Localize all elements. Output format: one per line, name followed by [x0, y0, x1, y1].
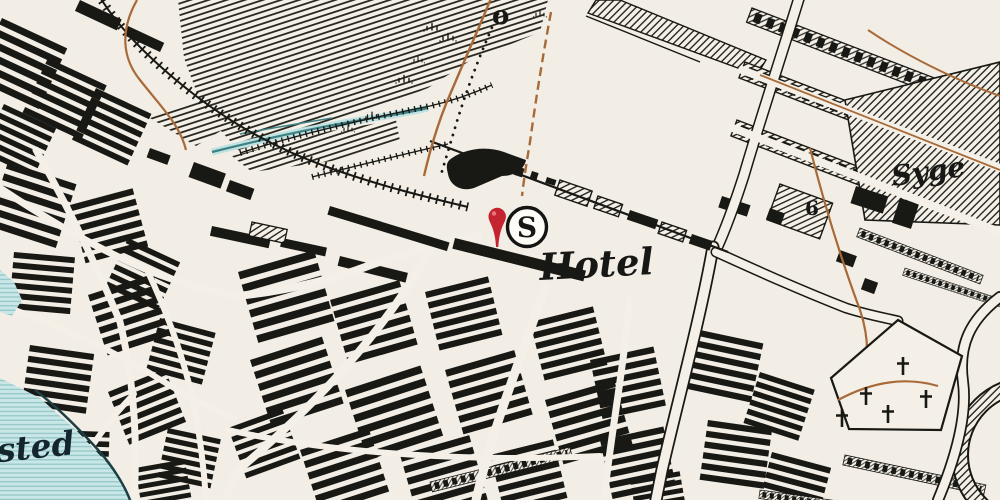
station-letter: S	[517, 211, 537, 244]
label-block-number: 6	[805, 196, 819, 220]
label-place-water: sted	[0, 423, 76, 470]
map-canvas: S Hotel Syge sted o 6	[0, 0, 1000, 500]
label-field-letter: o	[492, 1, 509, 31]
station-symbol: S	[508, 208, 547, 247]
map-viewport[interactable]: S Hotel Syge sted o 6	[0, 0, 1000, 500]
label-hotel: Hotel	[537, 239, 654, 289]
